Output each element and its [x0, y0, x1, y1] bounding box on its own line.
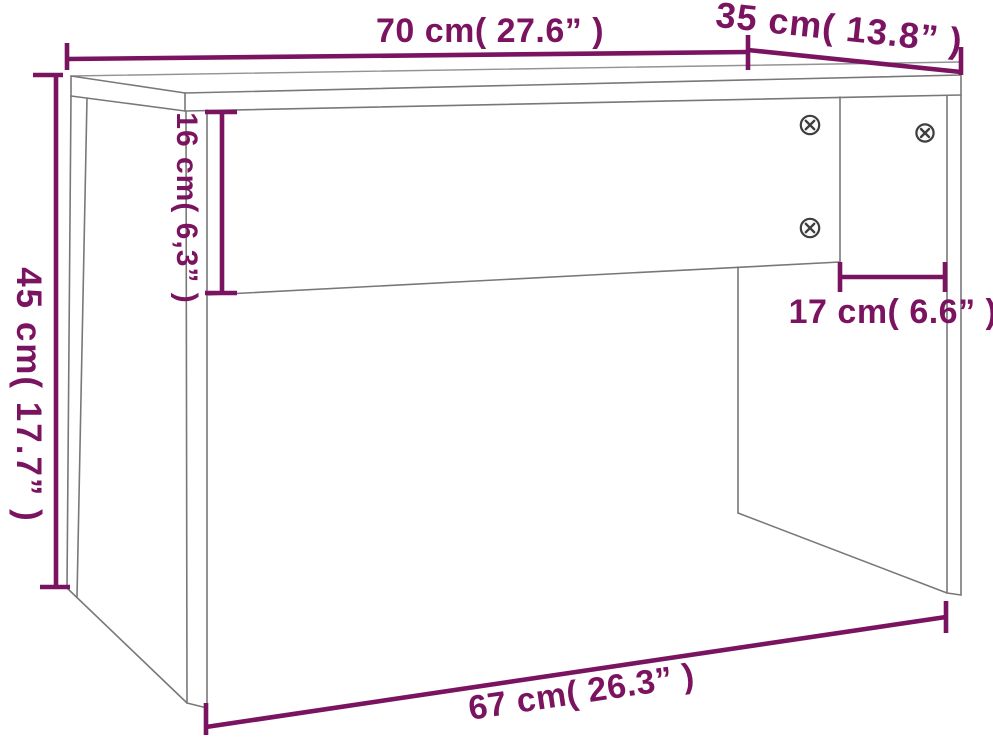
dimension-side-offset-label: 17 cm( 6.6” ) [789, 293, 993, 331]
right-panel-bottom-edge [947, 593, 961, 595]
screw-head-icon [801, 116, 819, 134]
left-panel-back-inner-edge [77, 98, 87, 597]
dimension-apron-height-label: 16 cm( 6,3” ) [170, 112, 203, 303]
dimension-top-width-label: 70 cm( 27.6” ) [376, 12, 604, 50]
left-panel-back-outer-edge [67, 96, 71, 588]
dimension-height: 45 cm( 17.7” ) [9, 75, 70, 587]
dimension-apron-height: 16 cm( 6,3” ) [170, 112, 237, 304]
dimension-base-width: 67 cm( 26.3” ) [206, 601, 946, 735]
screw-head-icon [801, 219, 819, 237]
top-left-end-top-edge [71, 76, 185, 93]
top-board [71, 62, 961, 111]
dim-line [67, 52, 748, 59]
top-back-edge [71, 62, 961, 76]
dimension-side-offset: 17 cm( 6.6” ) [789, 262, 993, 331]
dimension-diagram: 70 cm( 27.6” ) 35 cm( 13.8” ) 45 cm( 17.… [0, 0, 993, 739]
top-front-edge [185, 75, 961, 93]
right-side-panel [738, 95, 961, 595]
left-panel-bottom-edge [67, 588, 187, 703]
dimension-base-width-label: 67 cm( 26.3” ) [466, 656, 697, 727]
top-band-bottom-edge [185, 95, 961, 111]
screw-head-icon [916, 124, 933, 141]
right-panel-inner-bottom-edge [738, 513, 947, 593]
diagram-canvas: 70 cm( 27.6” ) 35 cm( 13.8” ) 45 cm( 17.… [0, 0, 993, 739]
screws [801, 116, 934, 237]
dimension-top-width: 70 cm( 27.6” ) [67, 12, 748, 70]
apron-panel [207, 97, 840, 295]
top-left-end-bottom-edge [71, 96, 185, 111]
dimension-height-label: 45 cm( 17.7” ) [9, 267, 48, 523]
apron-bottom-edge [207, 262, 840, 295]
